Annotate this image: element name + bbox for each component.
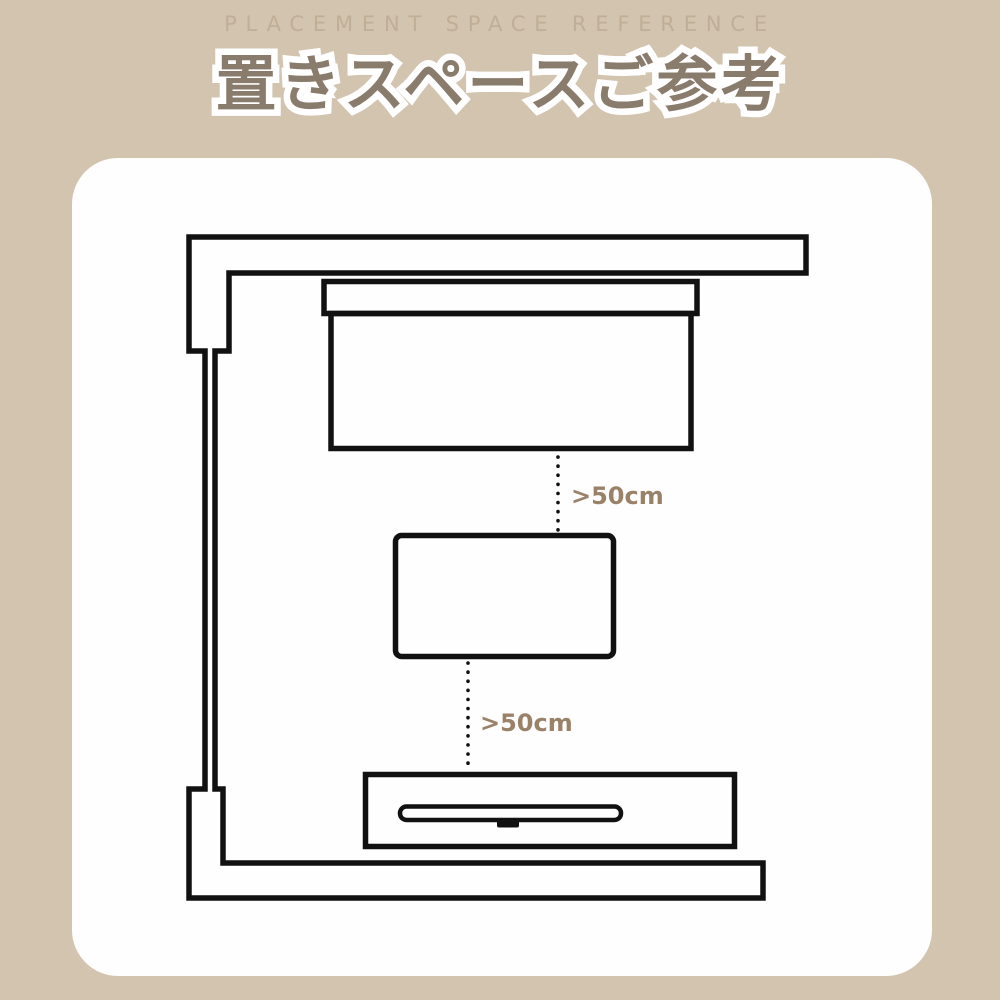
tv-stand-foot xyxy=(497,818,519,828)
floorplan-diagram: >50cm >50cm xyxy=(0,0,1000,1000)
page-background: PLACEMENT SPACE REFERENCE 置きスペースご参考 置きスペ… xyxy=(0,0,1000,1000)
sofa-seat xyxy=(331,314,691,449)
tv-board xyxy=(366,775,735,847)
room-wall-outline xyxy=(189,237,806,898)
gap-label-table-tv: >50cm xyxy=(480,709,573,737)
tv-screen xyxy=(400,807,621,821)
sofa-backrest xyxy=(324,282,697,314)
table xyxy=(396,536,614,657)
gap-label-sofa-table: >50cm xyxy=(571,482,664,510)
sofa xyxy=(324,282,697,449)
tv-board-top xyxy=(366,775,735,847)
